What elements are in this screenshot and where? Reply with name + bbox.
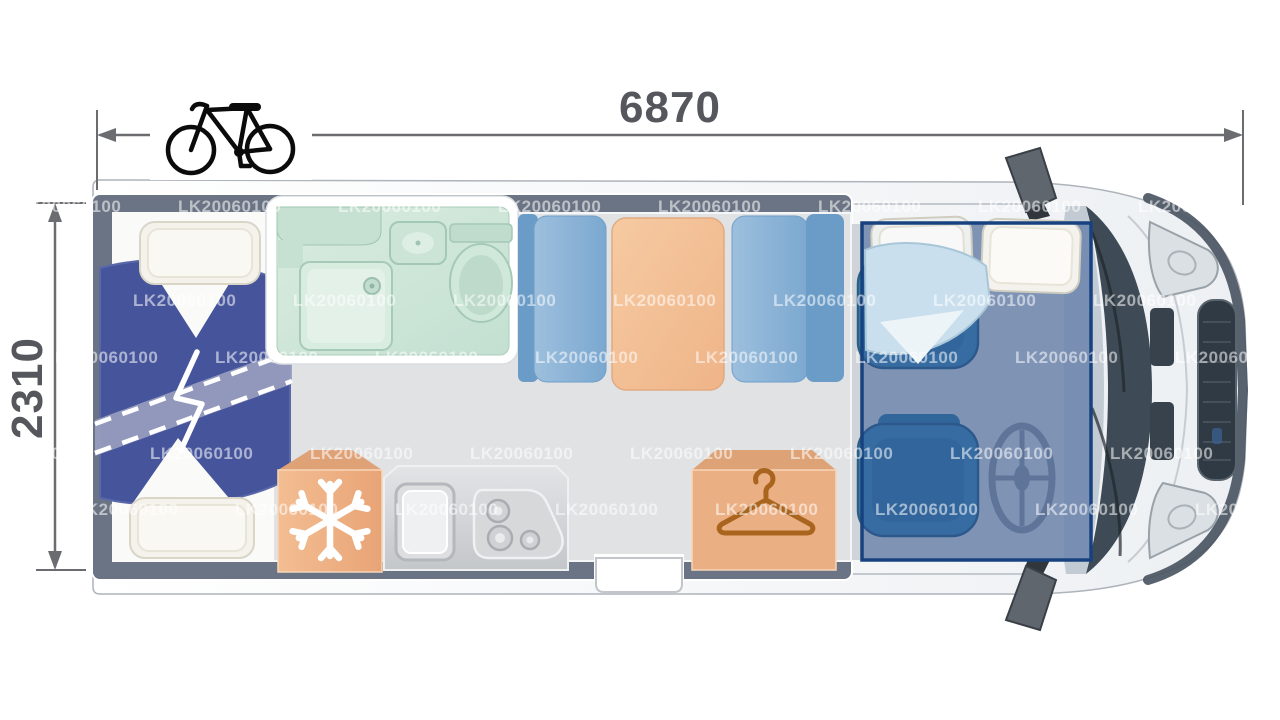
floorplan-canvas: 6870 2310 LK20060100LK20060100LK2006 [0, 0, 1280, 720]
cab-bed-zone [858, 216, 1091, 560]
wardrobe [692, 450, 836, 570]
shower-tray [300, 262, 392, 350]
bed-pillow [140, 222, 260, 284]
vanity-side [277, 240, 303, 268]
fridge [278, 450, 382, 572]
dinette-bench [518, 214, 606, 382]
bicycle-icon [150, 94, 312, 180]
dinette-table [612, 218, 724, 390]
toilet [450, 224, 512, 322]
kitchen [384, 466, 568, 570]
rear-beds [95, 212, 292, 562]
length-dimension-label: 6870 [619, 83, 721, 132]
dinette [518, 214, 844, 390]
floorplan-drawing: 6870 2310 [0, 0, 1280, 720]
bathroom [266, 196, 518, 364]
cab-bed-pillow [981, 218, 1081, 293]
grille [1198, 300, 1236, 480]
vanity-counter [277, 207, 381, 245]
width-dimension: 2310 [3, 203, 86, 570]
dinette-bench [732, 214, 844, 382]
width-dimension-label: 2310 [3, 337, 52, 439]
hood-vent [1150, 402, 1174, 460]
hood-vent [1150, 308, 1174, 366]
bed-pillow [130, 498, 254, 558]
bathroom-sink [390, 222, 446, 264]
kitchen-sink [396, 484, 454, 560]
entry-door-step [594, 554, 684, 592]
